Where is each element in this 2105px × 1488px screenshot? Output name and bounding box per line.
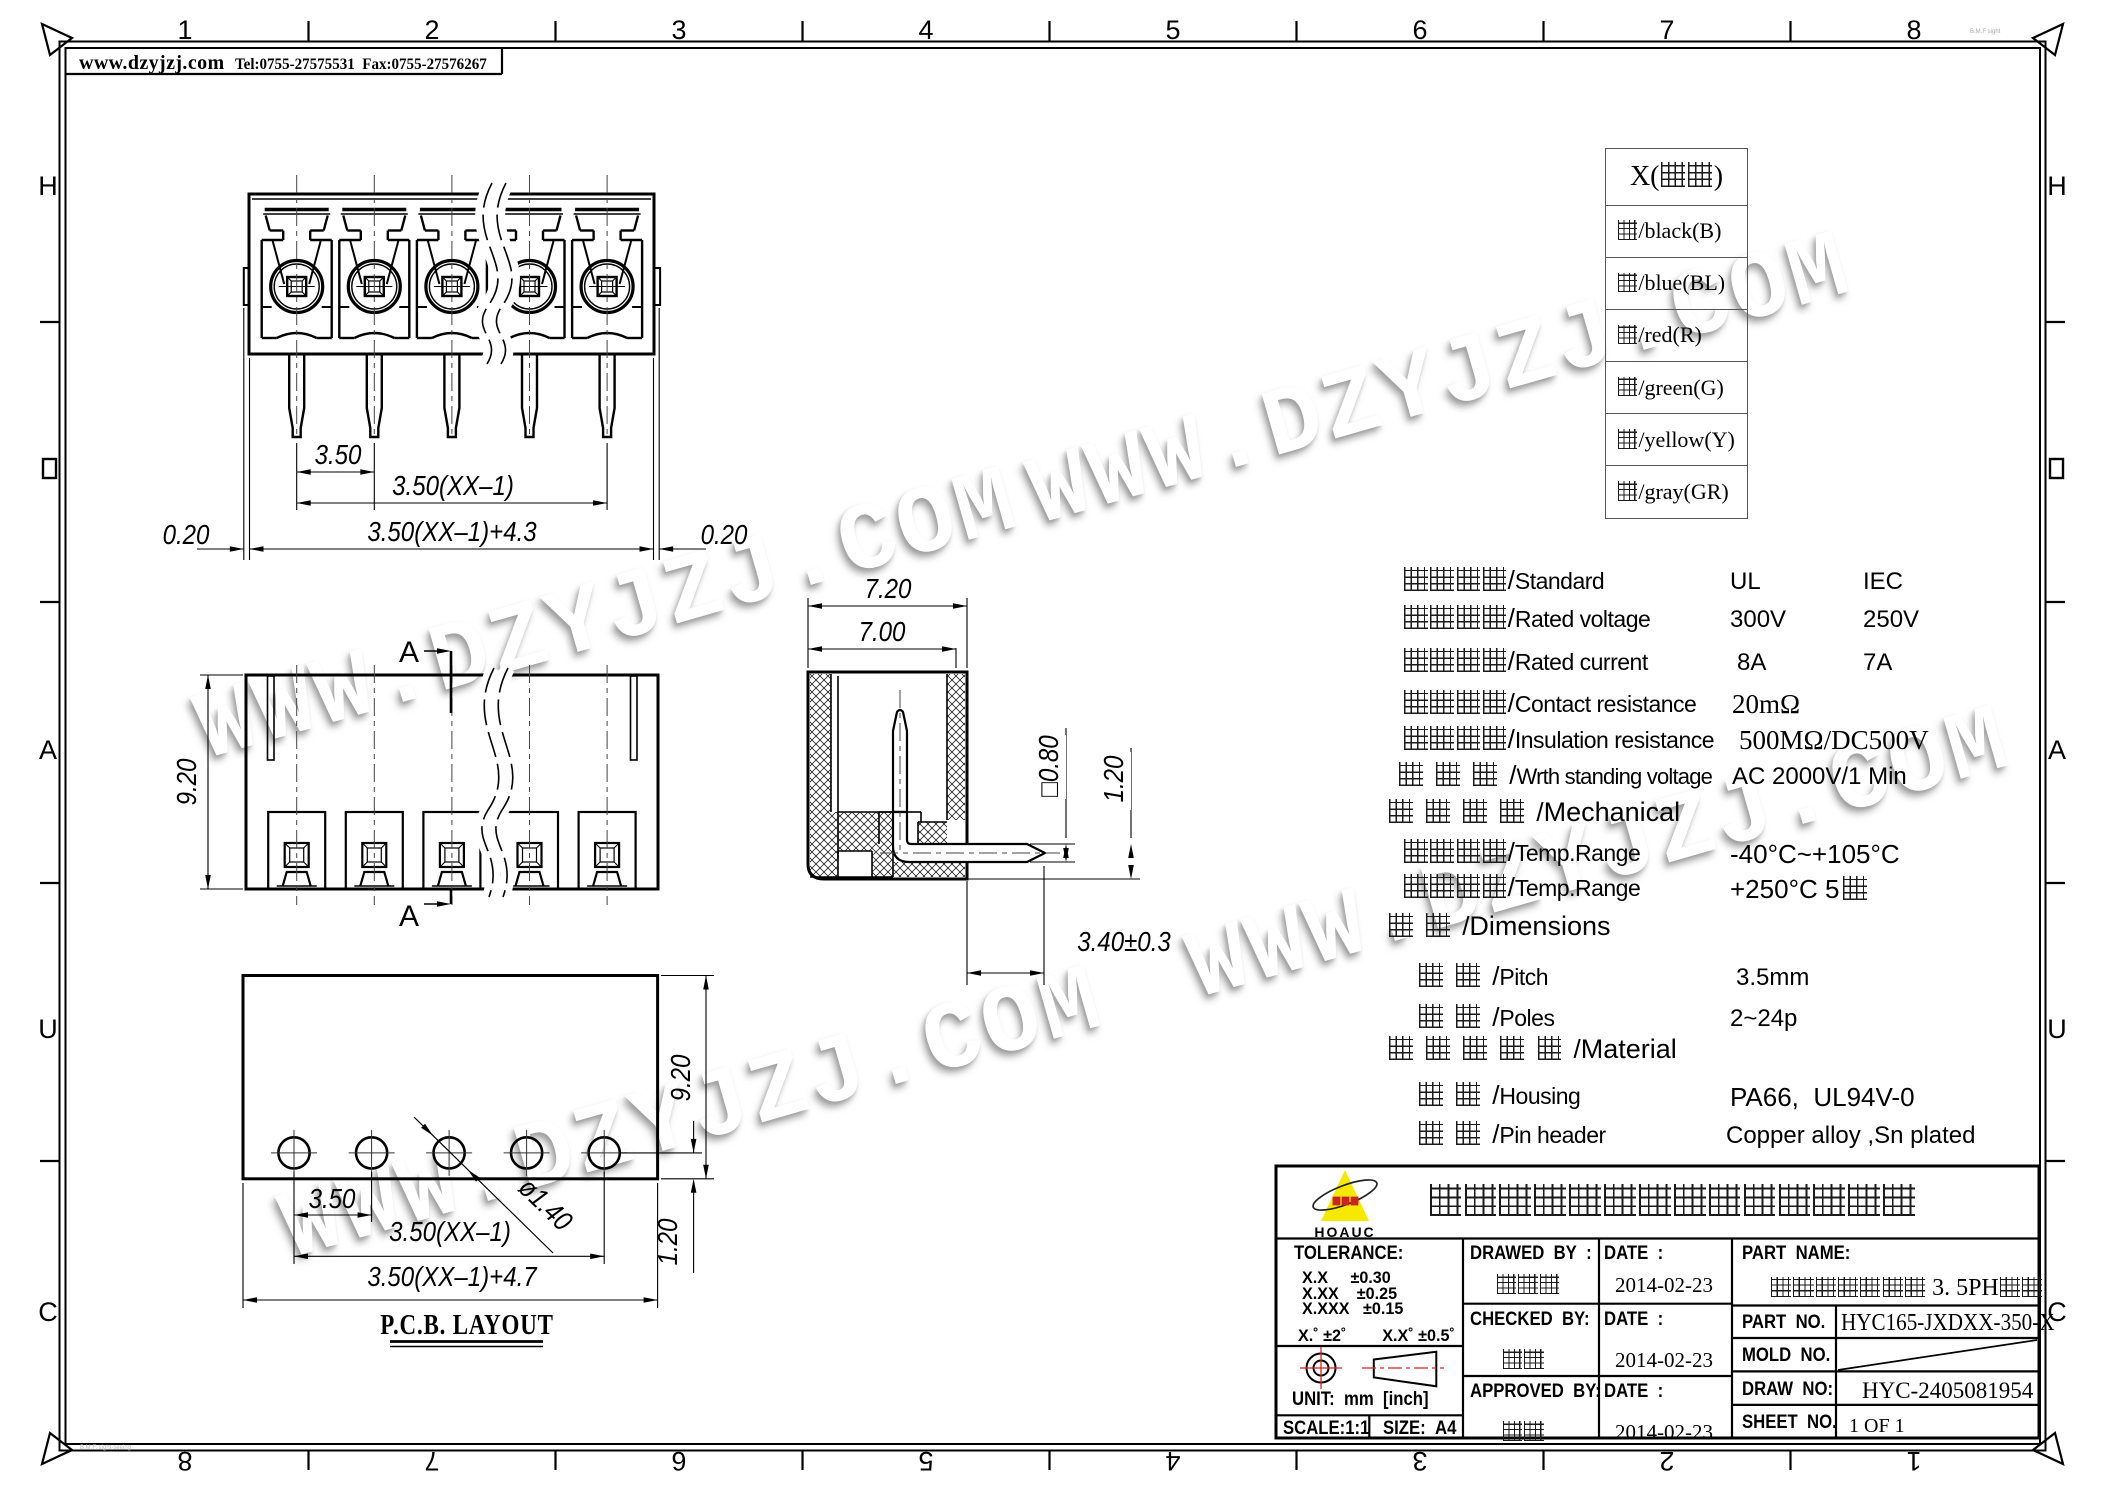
- svg-text:3.50(XX–1)+4.3: 3.50(XX–1)+4.3: [367, 515, 537, 547]
- svg-text:□0.80: □0.80: [1032, 735, 1064, 797]
- svg-text:H: H: [2047, 171, 2067, 201]
- svg-text:1: 1: [1906, 1446, 1921, 1476]
- svg-text:U: U: [2047, 1014, 2067, 1044]
- svg-text:7.00: 7.00: [859, 615, 906, 647]
- svg-text:6: 6: [671, 1446, 686, 1476]
- svg-text:8: 8: [1906, 15, 1921, 45]
- svg-text:3.40±0.3: 3.40±0.3: [1077, 925, 1171, 957]
- svg-text:3.50(XX–1): 3.50(XX–1): [389, 1215, 511, 1247]
- svg-text:B.M.F sight: B.M.F sight: [1970, 29, 2001, 35]
- svg-text:3: 3: [1412, 1446, 1427, 1476]
- svg-text:P.C.B. LAYOUT: P.C.B. LAYOUT: [380, 1309, 553, 1341]
- svg-text:ø1.40: ø1.40: [512, 1171, 579, 1237]
- svg-text:2: 2: [1659, 1446, 1674, 1476]
- svg-text:C: C: [38, 1297, 58, 1327]
- svg-text:1: 1: [177, 15, 192, 45]
- svg-text:1.20: 1.20: [1097, 755, 1129, 802]
- svg-text:U: U: [38, 1014, 58, 1044]
- svg-text:3: 3: [671, 15, 686, 45]
- svg-text:0.20: 0.20: [701, 518, 748, 550]
- svg-text:7: 7: [424, 1446, 439, 1476]
- svg-text:A: A: [2048, 735, 2066, 765]
- svg-text:8: 8: [177, 1446, 192, 1476]
- svg-text:1.20: 1.20: [651, 1218, 683, 1265]
- svg-text:2: 2: [424, 15, 439, 45]
- svg-text:5: 5: [918, 1446, 933, 1476]
- svg-text:6: 6: [1412, 15, 1427, 45]
- svg-text:H: H: [38, 171, 58, 201]
- svg-text:7: 7: [1659, 15, 1674, 45]
- svg-text:3.50: 3.50: [315, 438, 362, 470]
- svg-text:0.20: 0.20: [163, 518, 210, 550]
- svg-text:HOAUC: HOAUC: [1314, 1224, 1375, 1240]
- svg-text:3.50(XX–1): 3.50(XX–1): [392, 469, 514, 501]
- svg-text:A: A: [399, 636, 419, 669]
- svg-text:9.20: 9.20: [170, 758, 202, 805]
- svg-text:9.20: 9.20: [664, 1054, 696, 1101]
- svg-text:A: A: [39, 735, 57, 765]
- svg-text:5: 5: [1165, 15, 1180, 45]
- svg-text:3.50: 3.50: [309, 1182, 356, 1214]
- svg-text:A: A: [399, 900, 419, 933]
- svg-text:4: 4: [918, 15, 933, 45]
- svg-text:4: 4: [1165, 1446, 1180, 1476]
- svg-text:B.M.F. sight-seeing: B.M.F. sight-seeing: [80, 1445, 131, 1451]
- svg-text:7.20: 7.20: [865, 572, 912, 604]
- svg-text:3.50(XX–1)+4.7: 3.50(XX–1)+4.7: [367, 1260, 538, 1292]
